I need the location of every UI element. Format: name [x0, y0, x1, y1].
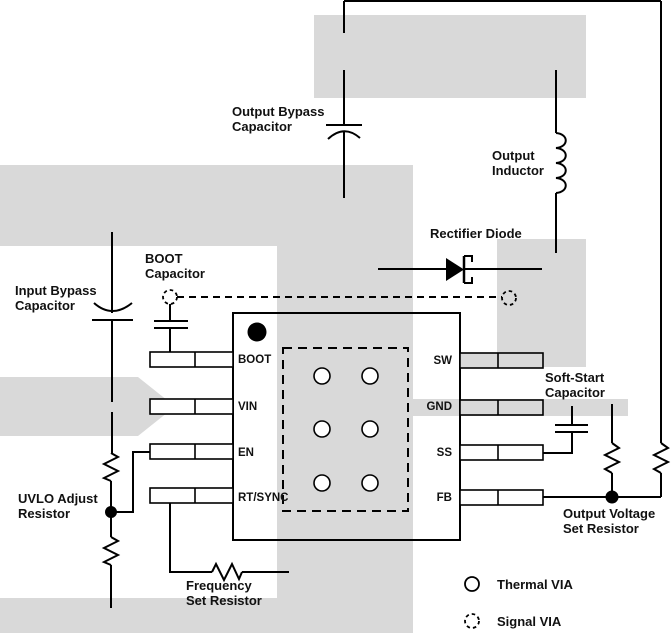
label-line: Output Bypass	[232, 104, 324, 119]
pin-label-vin: VIN	[238, 401, 257, 413]
diagram-drawing	[0, 0, 672, 638]
label-line: Resistor	[18, 506, 98, 521]
label-line: Inductor	[492, 163, 544, 178]
label-line: Capacitor	[232, 119, 324, 134]
label-line: Set Resistor	[186, 593, 262, 608]
label-boot-capacitor: BOOT Capacitor	[145, 251, 205, 281]
ic-pads-right	[460, 353, 543, 505]
label-output-inductor: Output Inductor	[492, 148, 544, 178]
thermal-via-icon	[314, 421, 330, 437]
label-line: Capacitor	[545, 385, 605, 400]
label-frequency-set-resistor: Frequency Set Resistor	[186, 578, 262, 608]
label-input-bypass-capacitor: Input Bypass Capacitor	[15, 283, 97, 313]
label-uvlo-adjust-resistor: UVLO Adjust Resistor	[18, 491, 98, 521]
label-line: Frequency	[186, 578, 262, 593]
label-line: Output	[492, 148, 544, 163]
copper-output-top-plane	[314, 15, 586, 98]
pad-gnd	[460, 400, 543, 415]
thermal-via-icon	[314, 368, 330, 384]
ic-pads-left	[150, 352, 233, 503]
pad-en	[150, 444, 233, 459]
boot-capacitor-symbol	[154, 304, 188, 352]
junction-dot	[106, 507, 116, 517]
junction-dot	[607, 492, 618, 503]
thermal-via-legend-icon	[465, 577, 479, 591]
pin1-marker-dot	[248, 323, 267, 342]
label-rectifier-diode: Rectifier Diode	[430, 226, 522, 241]
pin-label-gnd: GND	[392, 401, 452, 413]
copper-vin-plane-chevron	[0, 377, 175, 436]
pad-boot	[150, 352, 233, 367]
pin-label-sw: SW	[392, 355, 452, 367]
pin-label-fb: FB	[392, 492, 452, 504]
pin-label-en: EN	[238, 447, 254, 459]
pad-fb	[460, 490, 543, 505]
uvlo-adjust-resistor-symbol	[104, 453, 118, 608]
label-line: BOOT	[145, 251, 205, 266]
thermal-via-icon	[362, 368, 378, 384]
label-line: Capacitor	[15, 298, 97, 313]
pad-sw	[460, 353, 543, 368]
label-soft-start-capacitor: Soft-Start Capacitor	[545, 370, 605, 400]
label-line: UVLO Adjust	[18, 491, 98, 506]
label-line: Set Resistor	[563, 521, 655, 536]
pin-label-ss: SS	[392, 447, 452, 459]
pad-rtsync	[150, 488, 233, 503]
legend-thermal-via-label: Thermal VIA	[497, 577, 573, 592]
thermal-via-icon	[362, 475, 378, 491]
thermal-via-icon	[362, 421, 378, 437]
pad-ss	[460, 445, 543, 460]
label-line: Output Voltage	[563, 506, 655, 521]
pad-vin	[150, 399, 233, 414]
copper-sw-output-plane	[497, 239, 586, 367]
pin-label-rtsync: RT/SYNC	[238, 492, 288, 504]
en-wire	[116, 452, 150, 512]
signal-via-legend-icon	[465, 614, 479, 628]
label-output-voltage-set-resistor: Output Voltage Set Resistor	[563, 506, 655, 536]
pin-label-boot: BOOT	[238, 354, 271, 366]
signal-via-icon	[163, 290, 177, 304]
legend-signal-via-label: Signal VIA	[497, 614, 561, 629]
thermal-via-icon	[314, 475, 330, 491]
label-line: Rectifier Diode	[430, 226, 522, 241]
label-output-bypass-capacitor: Output Bypass Capacitor	[232, 104, 324, 134]
copper-ground-center-column	[277, 165, 413, 633]
label-line: Soft-Start	[545, 370, 605, 385]
frequency-set-resistor-symbol	[170, 503, 289, 580]
legend-icons	[465, 577, 479, 628]
label-line: Capacitor	[145, 266, 205, 281]
pcb-layout-diagram: Output Bypass Capacitor Output Inductor …	[0, 0, 672, 638]
label-line: Input Bypass	[15, 283, 97, 298]
